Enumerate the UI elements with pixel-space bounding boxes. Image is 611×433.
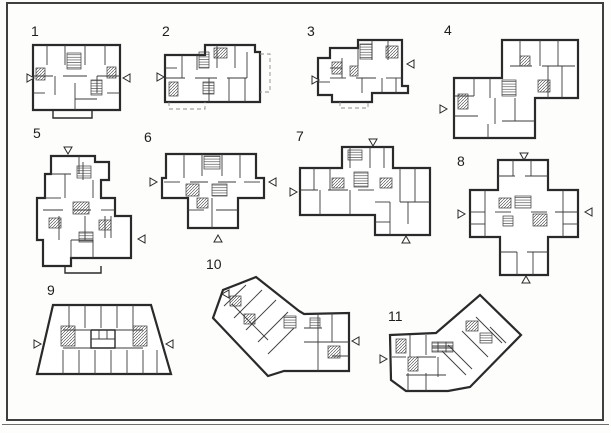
stair-core-hatch — [348, 150, 362, 160]
exterior-wall-outline — [300, 147, 430, 235]
stair-core-hatch — [36, 68, 45, 80]
stair-core-hatch — [186, 184, 199, 196]
floor-plan-5 — [35, 146, 147, 277]
stair-core-hatch — [538, 80, 550, 92]
stair-core-hatch — [204, 156, 220, 169]
stair-core-hatch — [61, 326, 75, 346]
stair-core-hatch — [380, 178, 392, 188]
stair-core-hatch — [49, 218, 61, 228]
entrance-arrow-icon — [123, 74, 130, 82]
stair-core-hatch — [244, 314, 255, 324]
stair-core-hatch — [169, 82, 178, 96]
entrance-arrow-icon — [214, 235, 222, 242]
entrance-arrow-icon — [458, 210, 465, 218]
floor-plan-4 — [440, 36, 586, 142]
exterior-wall-outline — [470, 160, 578, 275]
floor-plan-6 — [150, 150, 276, 242]
plan-number-label: 1 — [31, 24, 39, 38]
stair-core-hatch — [199, 52, 209, 68]
stair-core-hatch — [503, 216, 513, 226]
plan-number-label: 10 — [206, 257, 222, 271]
entrance-arrow-icon — [369, 139, 377, 146]
entrance-arrow-icon — [352, 337, 359, 345]
stair-core-hatch — [284, 316, 296, 328]
entrance-arrow-icon — [290, 188, 297, 196]
stair-core-hatch — [520, 56, 530, 66]
stair-core-hatch — [466, 321, 478, 331]
exterior-wall-outline — [37, 305, 171, 374]
plan-number-label: 2 — [162, 24, 170, 38]
entrance-arrow-icon — [269, 178, 276, 186]
floor-plan-3 — [312, 38, 416, 115]
entrance-arrow-icon — [407, 60, 414, 68]
entrance-arrow-icon — [380, 355, 387, 363]
scanned-floor-plans-page: 1234567891011 — [0, 0, 611, 433]
stair-core-hatch — [458, 94, 468, 109]
plan-number-label: 5 — [33, 126, 41, 140]
stair-core-hatch — [230, 296, 241, 306]
stair-core-hatch — [408, 357, 418, 371]
stair-core-hatch — [332, 62, 342, 74]
entrance-arrow-icon — [522, 276, 530, 283]
stair-core-hatch — [203, 82, 214, 94]
exterior-wall-outline — [213, 277, 349, 376]
stair-core-hatch — [67, 53, 81, 69]
stair-core-hatch — [328, 346, 340, 358]
stair-core-hatch — [502, 80, 516, 96]
entrance-arrow-icon — [585, 208, 592, 216]
stair-core-hatch — [386, 46, 398, 58]
plan-number-label: 4 — [444, 23, 452, 37]
stair-core-hatch — [91, 80, 102, 95]
plan-number-label: 9 — [47, 283, 55, 297]
stair-core-hatch — [360, 44, 372, 59]
entrance-arrow-icon — [64, 147, 72, 154]
stair-core-hatch — [214, 48, 227, 58]
stair-core-hatch — [533, 214, 547, 226]
plan-number-label: 3 — [307, 24, 315, 38]
stair-core-hatch — [133, 326, 147, 346]
stair-core-hatch — [310, 318, 320, 328]
entrance-arrow-icon — [166, 340, 173, 348]
stair-core-hatch — [515, 196, 531, 208]
stair-core-hatch — [73, 202, 89, 214]
stair-core-hatch — [79, 232, 93, 242]
entrance-arrow-icon — [440, 105, 447, 113]
plan-number-label: 6 — [144, 130, 152, 144]
stair-core-hatch — [432, 342, 453, 352]
floor-plan-2 — [157, 40, 273, 112]
stair-core-hatch — [77, 166, 91, 178]
stair-core-hatch — [499, 198, 511, 208]
stair-core-hatch — [99, 220, 111, 230]
stair-core-hatch — [396, 339, 406, 353]
stair-core-hatch — [197, 198, 208, 208]
plans-canvas: 1234567891011 — [0, 0, 611, 433]
entrance-arrow-icon — [157, 73, 164, 81]
floor-plan-7 — [290, 138, 436, 244]
floor-plan-1 — [27, 43, 131, 120]
stair-core-hatch — [107, 67, 116, 78]
entrance-arrow-icon — [138, 235, 145, 243]
floor-plan-9 — [33, 300, 177, 382]
entrance-arrow-icon — [150, 178, 157, 186]
floor-plan-8 — [455, 152, 597, 284]
stair-core-hatch — [354, 172, 368, 187]
entrance-arrow-icon — [402, 236, 410, 243]
floor-plan-11 — [378, 295, 530, 402]
stair-core-hatch — [332, 178, 344, 188]
entrance-arrow-icon — [34, 340, 41, 348]
stair-core-hatch — [480, 333, 492, 343]
floor-plan-10 — [210, 272, 362, 378]
stair-core-hatch — [212, 184, 227, 196]
stair-core-hatch — [350, 66, 358, 76]
